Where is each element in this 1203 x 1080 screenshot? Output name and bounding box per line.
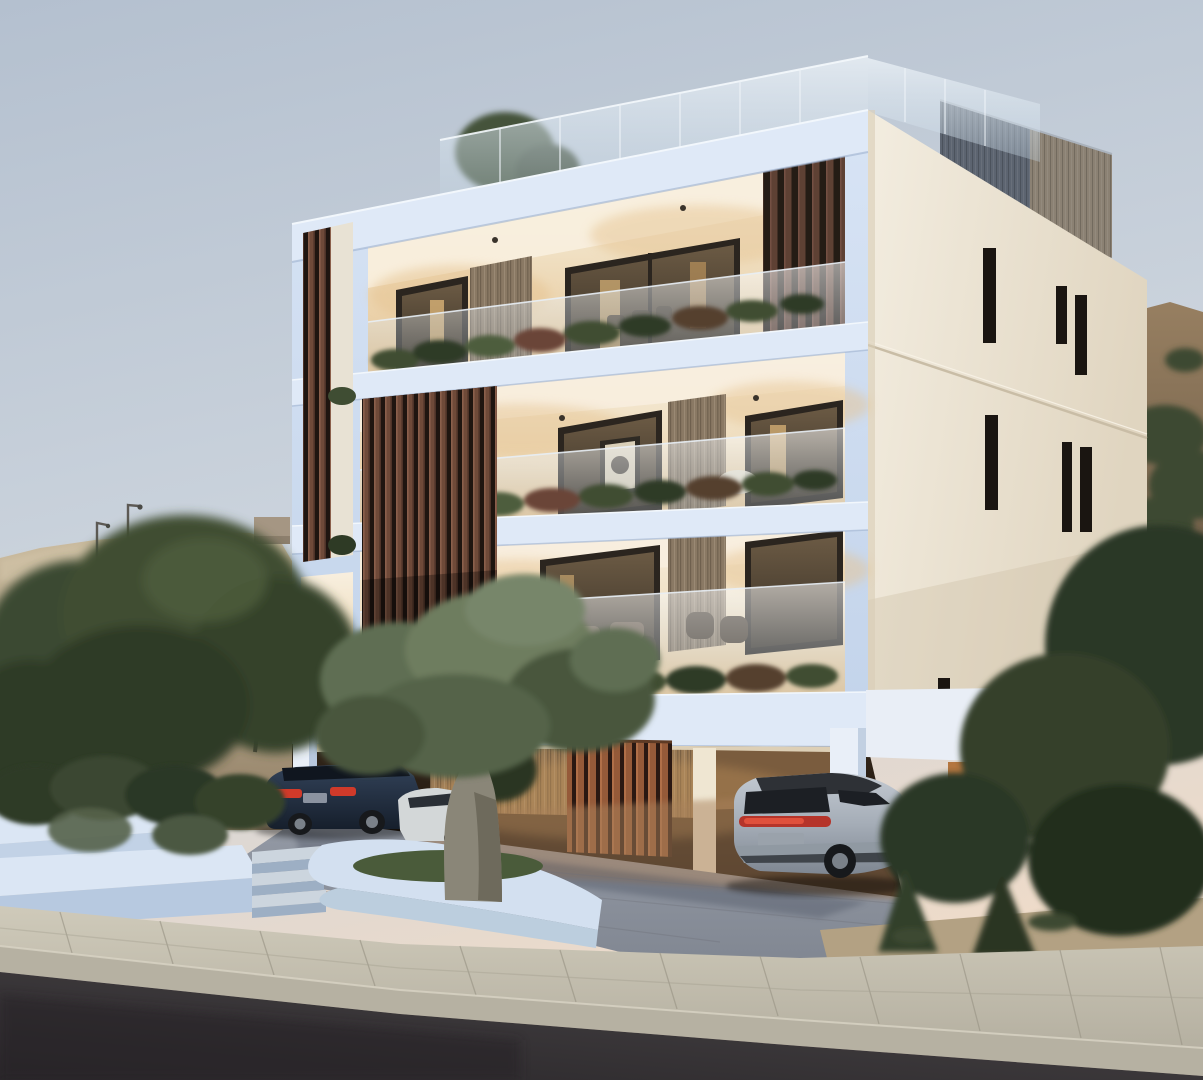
olive-canopy xyxy=(570,628,660,692)
slit-plant xyxy=(328,535,356,555)
sedan-taillight xyxy=(330,787,356,796)
se-window-slit xyxy=(983,248,996,343)
tree-canopy-highlight xyxy=(143,538,267,622)
sand-tuft xyxy=(892,928,932,944)
street-lamp-head xyxy=(137,504,142,509)
se-corner-shade xyxy=(868,110,875,745)
street-lamp-head xyxy=(106,524,110,528)
se-window-slit xyxy=(1075,295,1087,375)
wheel-rim xyxy=(832,853,848,869)
car-shadow xyxy=(726,876,918,896)
ceiling-light xyxy=(753,395,759,401)
olive-canopy xyxy=(465,574,585,646)
slit-louvers xyxy=(303,227,331,562)
se-window-slit xyxy=(1056,286,1067,344)
license-plate xyxy=(303,793,327,803)
sand-tuft xyxy=(1028,913,1076,931)
se-window-slit xyxy=(1062,442,1072,532)
olive-canopy xyxy=(315,695,425,775)
ceiling-light xyxy=(680,205,686,211)
se-window-slit xyxy=(985,415,998,510)
ceiling-light xyxy=(492,237,498,243)
se-window-slit xyxy=(1080,447,1092,532)
architectural-render xyxy=(0,0,1203,1080)
slit-plant xyxy=(328,387,356,405)
wheel-rim xyxy=(366,816,378,828)
wheel-rim xyxy=(295,819,306,830)
ceiling-light xyxy=(559,415,565,421)
suv-taillight-glow xyxy=(744,818,804,824)
